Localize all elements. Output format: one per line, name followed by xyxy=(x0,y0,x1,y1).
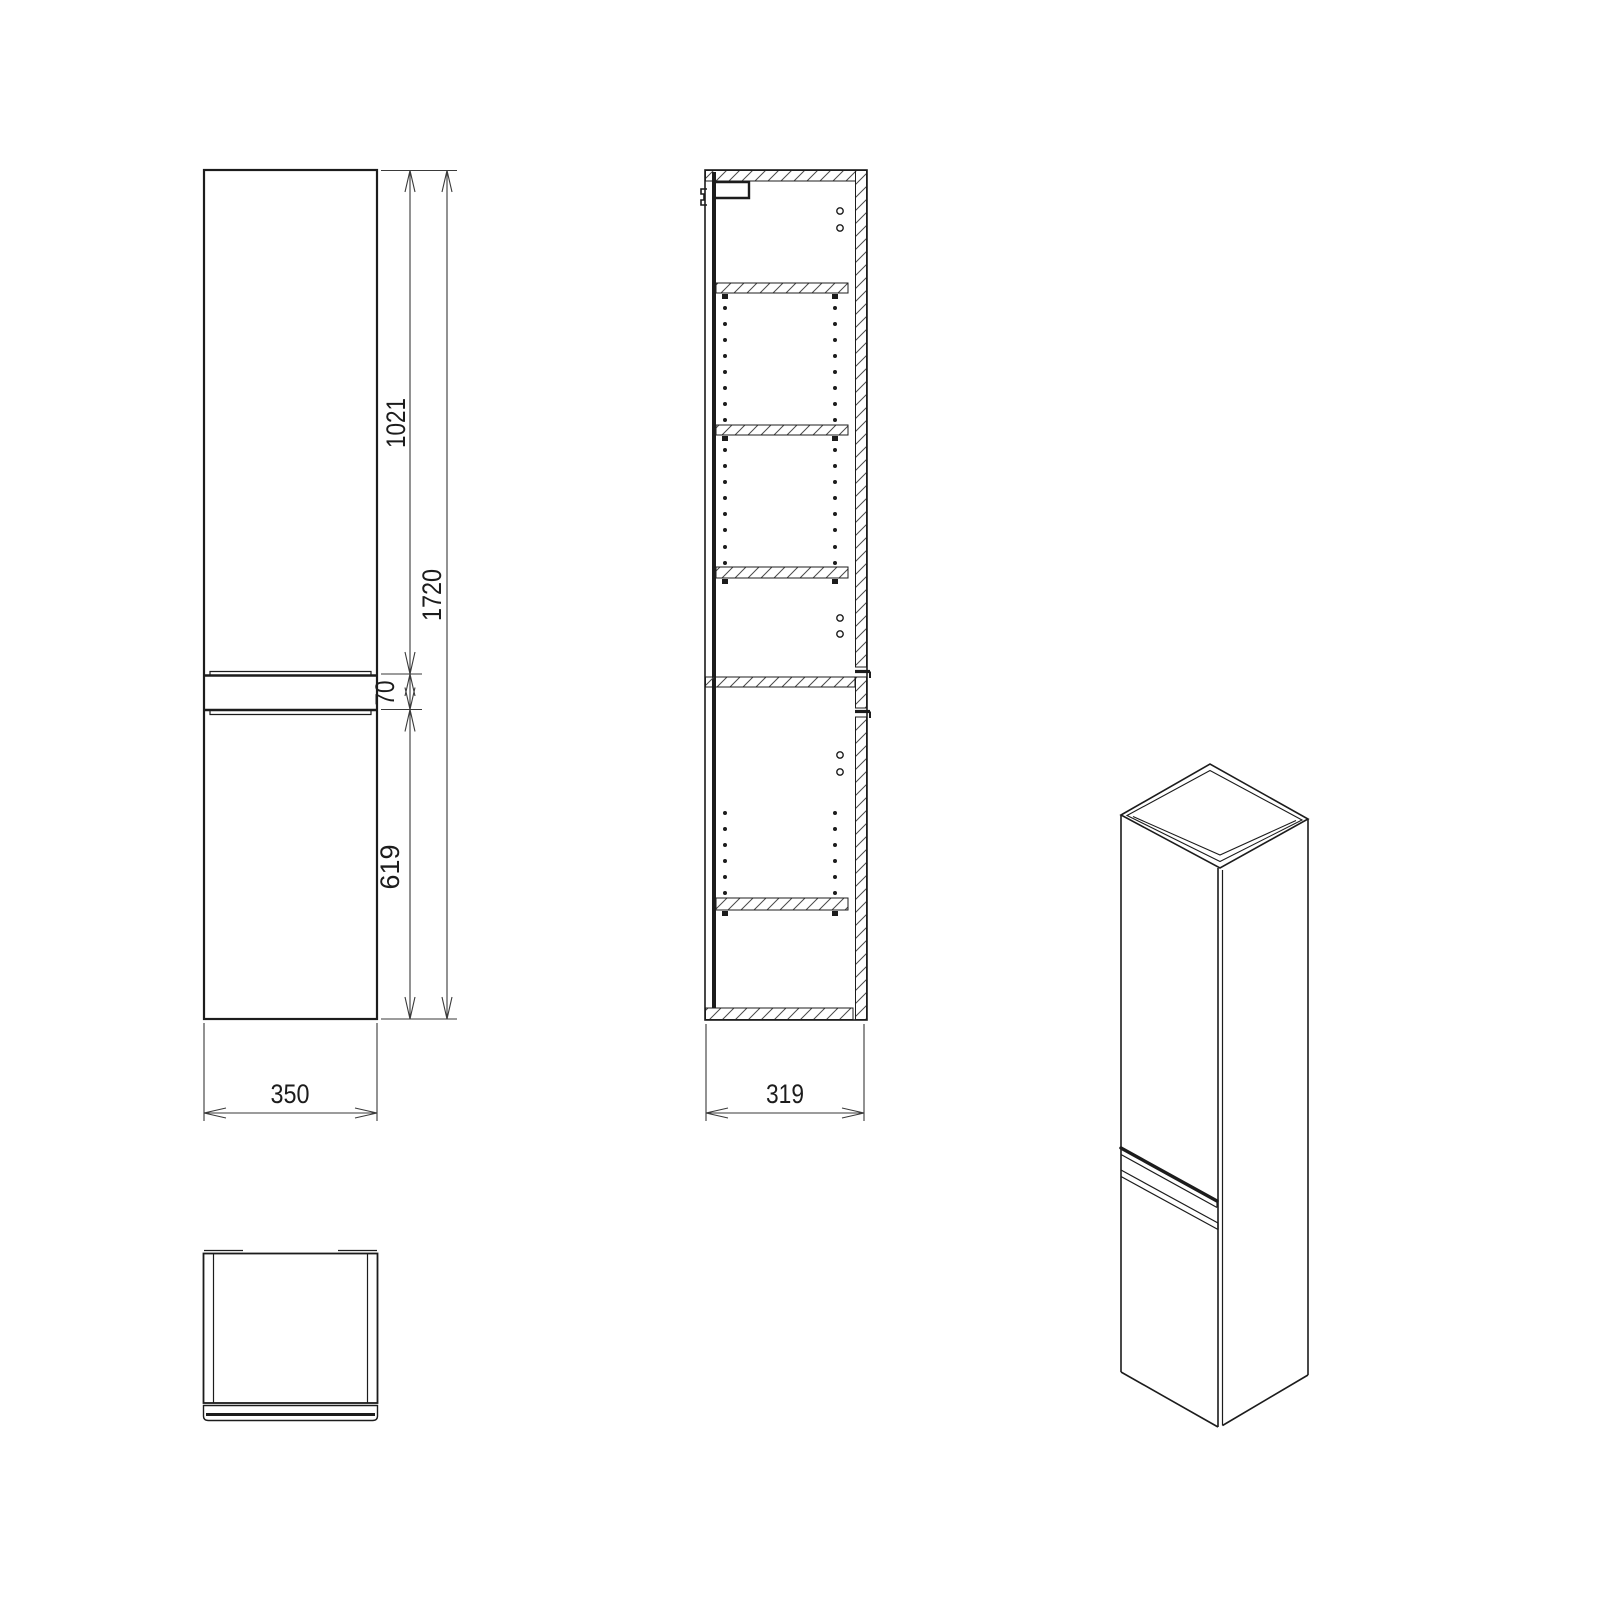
front-view xyxy=(204,170,377,1019)
wall-hook-profile xyxy=(701,189,707,205)
dim-handle-gap: 70 xyxy=(370,681,400,706)
shelf-pin-holes xyxy=(723,306,837,895)
bottom-panel-section xyxy=(706,1008,854,1020)
top-panel-section xyxy=(706,171,856,182)
iso-lower-door-top xyxy=(1121,1170,1218,1223)
front-cabinet-outline xyxy=(204,170,377,1019)
iso-handle-underside xyxy=(1121,1155,1217,1208)
iso-lower-door-lip xyxy=(1121,1177,1218,1230)
iso-door-gap xyxy=(1121,1148,1218,1230)
front-dimension-labels: 1021 1720 70 619 350 xyxy=(271,398,448,1109)
shelf-pins xyxy=(722,294,838,916)
shelf xyxy=(716,567,848,578)
top-view-carcass xyxy=(204,1254,378,1404)
dim-depth: 319 xyxy=(766,1079,804,1109)
isometric-view xyxy=(1121,764,1308,1427)
dim-upper-door-height: 1021 xyxy=(381,398,411,448)
back-panel-section xyxy=(712,172,716,1008)
door-section-mid xyxy=(856,677,867,708)
section-view xyxy=(701,170,870,1020)
lower-door-section xyxy=(856,717,867,1020)
top-view xyxy=(204,1251,378,1421)
cabinet-technical-drawing: 1021 1720 70 619 350 xyxy=(0,0,1600,1600)
shelf xyxy=(716,283,848,293)
iso-top-face-inner-frame xyxy=(1127,771,1302,862)
dim-lower-door-height: 619 xyxy=(375,845,405,890)
dim-total-height: 1720 xyxy=(417,569,447,621)
dim-width: 350 xyxy=(271,1079,310,1109)
upper-door-section xyxy=(856,171,867,668)
section-outline xyxy=(705,170,867,1020)
shelves xyxy=(706,283,856,910)
iso-bottom-edge-left xyxy=(1121,1372,1218,1427)
shelf xyxy=(716,425,848,435)
technical-drawing-page: 1021 1720 70 619 350 xyxy=(0,0,1600,1600)
iso-upper-door-handle xyxy=(1121,1148,1217,1201)
iso-bottom-edge-right xyxy=(1223,1375,1309,1426)
shelf-fixed xyxy=(706,677,856,687)
hanging-bracket xyxy=(716,182,749,198)
shelf xyxy=(716,898,848,910)
front-dimensions xyxy=(204,171,457,1122)
